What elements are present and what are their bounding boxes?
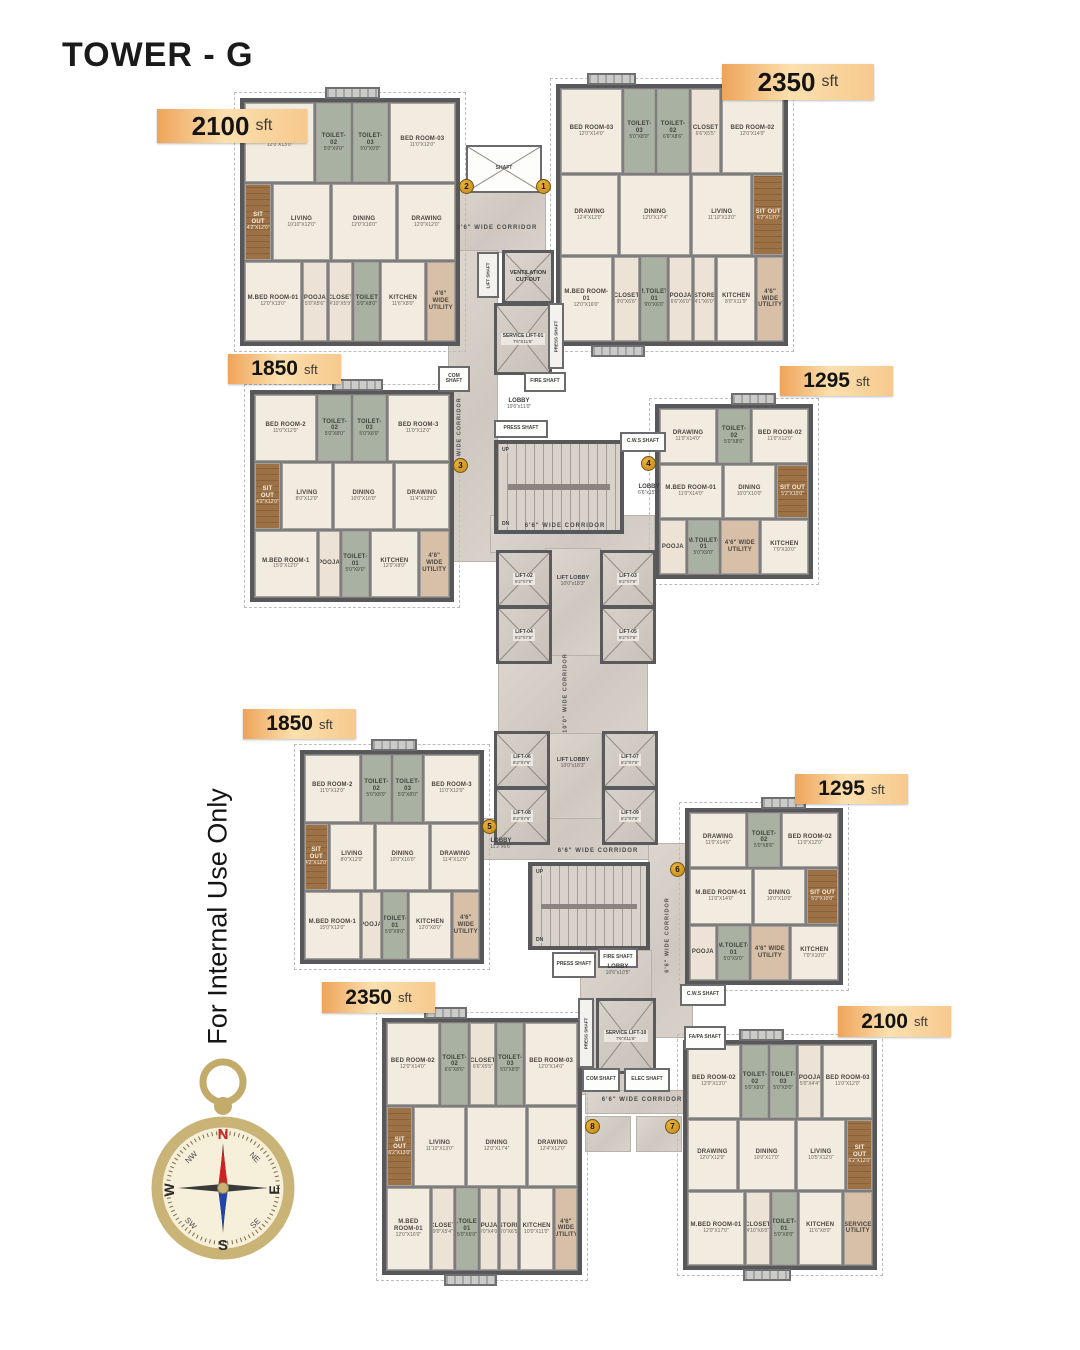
label-service-lift-10: SERVICE LIFT-107'6"X11'6" [604, 1030, 649, 1043]
room-drawing: DRAWING11'0"X14'6" [690, 813, 746, 867]
fa-pa-shaft: FA/PA SHAFT [684, 1026, 726, 1050]
label-lift-06: LIFT-068'2"X7'6" [511, 754, 533, 767]
unit-row: BED ROOM-211'0"X12'0"TOILET-025'0"X8'0"T… [304, 754, 480, 823]
unit-plan-unit-1295-low-right: DRAWING11'0"X14'6"TOILET-025'0"X8'6"BED … [685, 808, 843, 985]
compass-south-label: S [218, 1237, 228, 1254]
stair-landing [508, 484, 611, 490]
compass-icon: N S W E NW NE SW SE [148, 1038, 298, 1276]
room-closet: CLOSET4'10"X6'0" [746, 1192, 770, 1265]
area-badge-2100-7: 2100sft [838, 1006, 951, 1037]
lift-03: LIFT-038'2"X7'6" [600, 550, 656, 608]
room-dims: 11'0"X12'0" [767, 437, 792, 443]
room-dims: 12'0"X13'0" [267, 143, 292, 149]
room-label: M.TOILET-01 [641, 289, 667, 303]
room-kitchen: KITCHEN11'6"X8'0" [381, 262, 424, 341]
unit-plan-unit-2100-bottom-right: BED ROOM-0212'0"X13'0"TOILET-025'0"X9'0"… [683, 1040, 877, 1270]
room-dims: 5'0"X9'0" [324, 147, 344, 153]
unit-number-4: 4 [641, 456, 656, 471]
room-label: SIT OUT [389, 1137, 410, 1151]
area-value: 2100 [861, 1010, 908, 1034]
room-living: LIVING11'10"X13'0" [692, 175, 751, 255]
room-label: TOILET-02 [364, 779, 389, 793]
unit-row: M.BED ROOM-0112'0"X17'0"CLOSET4'10"X6'0"… [687, 1191, 873, 1266]
room-toilet-02: TOILET-025'0"X8'6" [748, 813, 780, 867]
room-m-bed-room-01: M.BED ROOM-0112'0"X13'0" [245, 262, 301, 341]
corridor-label-vertical: 6'6" WIDE CORRIDOR [660, 865, 676, 1005]
lift-lobby-label: LIFT LOBBY10'0"x18'3" [548, 568, 598, 594]
room-dining: DINING10'0"X16'0" [334, 463, 393, 528]
room-drawing: DRAWING12'0"X12'0" [398, 184, 455, 259]
room-closet: CLOSET6'6"X5'5" [470, 1023, 495, 1105]
room-dims: 5'0"X8'0" [359, 432, 379, 438]
room-kitchen: KITCHEN11'6"X8'0" [799, 1192, 842, 1265]
label-c-w-s-shaft: C.W.S SHAFT [687, 992, 719, 998]
room-dims: 8'0"X12'0" [296, 497, 319, 503]
area-value: 1850 [251, 357, 298, 381]
room-bed-room-02: BED ROOM-0212'0"X14'0" [387, 1023, 439, 1105]
compass-east-label: E [266, 1185, 282, 1194]
room-sit-out: SIT OUT4'2"X12'0" [245, 184, 271, 259]
room-label: 4'6" WIDE UTILITY [429, 291, 453, 312]
room-bed-room-02: BED ROOM-0212'0"X13'0" [688, 1045, 740, 1118]
room-dims: 5'2"X10'0" [781, 492, 804, 498]
watermark-text: For Internal Use Only [203, 777, 234, 1057]
label-shaft: SHAFT [496, 166, 513, 172]
lobby-dims: 11'2"x6'6" [490, 844, 512, 850]
room-label: TOILET-01 [772, 1219, 796, 1233]
room-kitchen: KITCHEN12'0"X8'0" [371, 531, 417, 597]
compass-west-label: W [161, 1183, 177, 1197]
label-lift-03: LIFT-038'2"X7'6" [617, 573, 639, 586]
unit-plan-unit-1850-mid-left: BED ROOM-211'0"X12'0"TOILET-025'0"X8'0"T… [250, 390, 454, 602]
corridor-label: 8'6" WIDE CORRIDOR [450, 222, 544, 234]
balcony-tab [739, 1029, 784, 1041]
unit-number-6: 6 [670, 862, 685, 877]
room-dims: 10'0"X17'0" [754, 1156, 779, 1162]
lift-lobby-dims: 10'0"x18'3" [561, 581, 586, 587]
area-unit: sft [821, 73, 838, 91]
room-living: LIVING8'0"X12'0" [330, 824, 375, 890]
balcony-tab [444, 1274, 498, 1286]
room-label: POOJA [692, 949, 714, 956]
label-lift-09: LIFT-098'2"X7'6" [619, 810, 641, 823]
unit-row: POOJAM.TOILET-015'0"X9'0"4'6" WIDE UTILI… [659, 519, 809, 575]
floor-plan-canvas: TOWER - G For Internal Use Only N S W E … [0, 0, 1080, 1350]
unit-row: SIT OUT6'2"X13'0"LIVING11'10"X13'0"DININ… [386, 1106, 578, 1186]
area-unit: sft [319, 717, 333, 732]
room-toilet-03: TOILET-035'0"X8'0" [393, 755, 422, 822]
unit-row: M.BED ROOM-115'0"X12'0"POOJATOILET-015'0… [254, 530, 450, 598]
room-sit-out: SIT OUT4'2"X12'0" [255, 463, 280, 528]
room-dims: 11'4"X12'0" [442, 858, 467, 864]
room-drawing: DRAWING11'0"X14'0" [660, 409, 716, 463]
label-c-w-s-shaft: C.W.S SHAFT [627, 439, 659, 445]
room-toilet-02: TOILET-026'6"X8'6" [441, 1023, 469, 1105]
room-dims: 12'0"X16'0" [396, 1233, 421, 1239]
com-shaft: COM SHAFT [438, 366, 470, 392]
room-pooja: POOJA5'0"X5'6" [303, 262, 327, 341]
room-dining: DINING12'0"X17'4" [620, 175, 690, 255]
room-dining: DINING10'0"X10'0" [724, 465, 775, 519]
room-dims: 8'0"X12'0" [340, 858, 363, 864]
room-m-bed-room-01: M.BED ROOM-0112'0"X17'0" [688, 1192, 744, 1265]
press-shaft: PRESS SHAFT [578, 998, 594, 1068]
room-dims: 12'0"X12'0" [414, 223, 439, 229]
room-service-utility: SERVICE UTILITY [844, 1192, 872, 1265]
unit-row: M.BED ROOM-0112'0"X16'0"CLOSET9'0"X5'4"M… [386, 1187, 578, 1271]
room-dims: 5'0"X8'0" [357, 302, 377, 308]
area-value: 2350 [345, 986, 392, 1010]
room-dims: 9'0"X6'0" [644, 303, 664, 309]
room-dims: 5'0"X9'0" [385, 930, 405, 936]
label-lift-05: LIFT-058'2"X7'6" [617, 629, 639, 642]
room-bed-room-3: BED ROOM-311'0"X12'0" [388, 395, 449, 461]
room-bed-room-3: BED ROOM-311'0"X12'0" [424, 755, 479, 822]
room-dims: 6'6"X5'5" [473, 1065, 493, 1071]
room-dims: 10'10"X12'0" [287, 223, 315, 229]
unit-row: SIT OUT4'2"X12'0"LIVING10'10"X12'0"DININ… [244, 183, 456, 260]
lobby-dims: 10'6"x10'5" [606, 970, 631, 976]
room-label: POOJA [662, 544, 684, 551]
room-toilet-02: TOILET-025'0"X8'0" [318, 395, 351, 461]
room-label: SIT OUT [247, 212, 269, 226]
unit-number-5: 5 [482, 819, 497, 834]
room-living: LIVING10'5"X12'0" [797, 1120, 846, 1190]
room-label: TOILET-02 [750, 831, 778, 845]
room-dims: 11'4"X12'0" [410, 497, 435, 503]
room-dims: 12'0"X14'0" [740, 132, 765, 138]
room-label: TOILET-03 [498, 1055, 522, 1069]
room-toilet-03: TOILET-035'0"X8'0" [497, 1023, 523, 1105]
room-4-6-wide-utility: 4'6" WIDE UTILITY [420, 531, 449, 597]
room-closet: CLOSET9'0"X6'6" [614, 257, 640, 341]
lift-04: LIFT-048'2"X7'6" [496, 606, 552, 664]
stairs-up-label: UP [502, 447, 509, 453]
room-dims: 6'2"X12'0" [848, 1159, 871, 1165]
room-dims: 5'0"X8'0" [629, 135, 649, 141]
label-press-shaft: PRESS SHAFT [556, 962, 591, 968]
room-dims: 4'2"X12'0" [247, 226, 270, 232]
corridor-label-text: 6'6" WIDE CORRIDOR [665, 897, 671, 972]
room-toilet-03: TOILET-035'0"X8'0" [624, 89, 655, 173]
area-value: 1295 [803, 369, 850, 393]
room-dims: 10'0"X16'0" [390, 858, 415, 864]
room-dims: 11'10"X13'0" [708, 216, 736, 222]
room-label: TOILET-03 [771, 1072, 795, 1086]
room-dims: 12'4"X12'0" [577, 216, 602, 222]
unit-row: BED ROOM-211'0"X12'0"TOILET-025'0"X8'0"T… [254, 394, 450, 462]
room-dims: 5'0"X8'0" [500, 1068, 520, 1074]
lift-shaft: LIFT SHAFT [477, 252, 499, 298]
room-dims: 4'1"X6'0" [695, 300, 715, 306]
unit-row: M.BED ROOM-0112'0"X16'0"CLOSET9'0"X6'6"M… [560, 256, 784, 342]
room-dims: 6'6"X8'6" [663, 135, 683, 141]
lift-09: LIFT-098'2"X7'6" [602, 787, 658, 845]
room-label: 4'6" WIDE UTILITY [758, 289, 782, 310]
room-dining: DINING12'0"X16'0" [332, 184, 397, 259]
room-dims: 12'0"X13'0" [260, 302, 285, 308]
room-dims: 12'0"X13'0" [701, 1082, 726, 1088]
lobby-area: LOBBY10'6"x10'5" [588, 958, 648, 982]
room-closet: CLOSET4'10"X5'9" [329, 262, 353, 341]
room-dims: 10'5"X12'0" [808, 1156, 833, 1162]
room-dims: 5'2"X10'0" [811, 897, 834, 903]
room-dims: 15'0"X12'0" [273, 564, 298, 570]
label-service-lift-01: SERVICE LIFT-017'6"X11'6" [501, 333, 546, 346]
area-badge-1850-2: 1850sft [228, 354, 341, 384]
room-dims: 5'0"X9'0" [693, 551, 713, 557]
room-dims: 11'10"X13'0" [426, 1147, 454, 1153]
area-value: 1850 [266, 712, 313, 736]
unit-row: DRAWING12'0"X12'0"DINING10'0"X17'0"LIVIN… [687, 1119, 873, 1191]
unit-number-3: 3 [453, 458, 468, 473]
room-label: SERVICE UTILITY [844, 1222, 872, 1236]
room-toilet-02: TOILET-026'6"X8'6" [657, 89, 690, 173]
area-value: 2350 [758, 67, 816, 98]
balcony-tab [743, 1269, 791, 1281]
room-store: STORE6'0"X6'5" [500, 1188, 518, 1270]
room-dims: 11'6"X8'0" [392, 302, 414, 308]
room-store: STORE4'1"X6'0" [694, 257, 715, 341]
label-elec-shaft: ELEC SHAFT [631, 1077, 662, 1083]
area-unit: sft [914, 1014, 928, 1029]
room-dims: 6'6"X8'6" [445, 1068, 465, 1074]
unit-row: SIT OUT4'2"X12'0"LIVING8'0"X12'0"DINING1… [304, 823, 480, 891]
room-dining: DINING10'0"X16'0" [376, 824, 429, 890]
room-dims: 12'0"X17'4" [484, 1147, 509, 1153]
room-dims: 11'0"X12'0" [835, 1082, 860, 1088]
corridor-label: 6'6" WIDE CORRIDOR [500, 520, 630, 532]
area-badge-2350-1: 2350sft [722, 64, 874, 100]
room-dims: 5'0"X9'0" [723, 957, 743, 963]
room-drawing: DRAWING11'4"X12'0" [395, 463, 449, 528]
room-toilet-01: TOILET-015'0"X8'0" [772, 1192, 797, 1265]
area-badge-1295-3: 1295sft [780, 366, 893, 396]
unit-row: BED ROOM-0212'0"X14'0"TOILET-026'6"X8'6"… [386, 1022, 578, 1106]
area-badge-2100-0: 2100sft [157, 109, 307, 143]
room-toilet-02: TOILET-025'0"X9'0" [316, 103, 351, 182]
unit-row: DRAWING12'4"X12'0"DINING12'0"X17'4"LIVIN… [560, 174, 784, 256]
room-kitchen: KITCHEN7'0"X10'0" [761, 520, 808, 574]
stair-landing [541, 904, 637, 910]
room-label: TOILET-02 [318, 133, 349, 147]
lobby-dims: 6'6"x15'9" [638, 490, 660, 496]
room-m-bed-room-01: M.BED ROOM-0112'0"X16'0" [387, 1188, 430, 1270]
room-label: 4'6" WIDE UTILITY [723, 540, 756, 554]
room-kitchen: KITCHEN7'0"X10'0" [791, 926, 838, 980]
room-living: LIVING10'10"X12'0" [273, 184, 330, 259]
room-label: 4'6" WIDE UTILITY [454, 915, 478, 936]
lobby-dims: 10'6"x11'0" [507, 404, 531, 410]
unit-number-7: 7 [665, 1119, 680, 1134]
room-label: TOILET-02 [743, 1072, 767, 1086]
room-drawing: DRAWING12'4"X12'0" [561, 175, 618, 255]
room-toilet-01: TOILET-015'0"X9'0" [342, 531, 370, 597]
area-unit: sft [871, 782, 885, 797]
room-dining: DINING12'0"X17'4" [467, 1107, 526, 1185]
room-4-6-wide-utility: 4'6" WIDE UTILITY [453, 892, 479, 959]
unit-plan-unit-2350-bottom-left: BED ROOM-0212'0"X14'0"TOILET-026'6"X8'6"… [382, 1018, 582, 1275]
room-dims: 12'0"X8'0" [419, 926, 442, 932]
room-bed-room-03: BED ROOM-0311'0"X12'0" [823, 1045, 872, 1118]
room-dims: 10'0"X11'0" [524, 1230, 549, 1236]
room-label: M.TOILET-01 [718, 943, 749, 957]
room-label: TOILET-02 [659, 121, 688, 135]
room-dims: 10'0"X16'0" [351, 497, 376, 503]
room-dims: 10'0"X10'0" [767, 897, 792, 903]
room-label: M.BED ROOM-01 [389, 1219, 428, 1233]
room-pooja: POOJA6'6"X6'0" [669, 257, 692, 341]
balcony-tab [325, 87, 380, 99]
unit-row: M.BED ROOM-0111'0"X14'0"DINING10'0"X10'0… [689, 868, 839, 924]
room-4-6-wide-utility: 4'6" WIDE UTILITY [751, 926, 788, 980]
label-press-shaft: PRESS SHAFT [554, 320, 559, 352]
unit-row: M.BED ROOM-0112'0"X13'0"POOJA5'0"X5'6"CL… [244, 261, 456, 342]
area-unit: sft [856, 374, 870, 389]
room-label: TOILET-01 [383, 916, 407, 930]
room-puja: PUJA4'0"X4'0" [480, 1188, 498, 1270]
label-lift-shaft: LIFT SHAFT [486, 262, 491, 288]
press-shaft: PRESS SHAFT [494, 420, 548, 438]
label-fire-shaft: FIRE SHAFT [530, 379, 559, 385]
room-dims: 11'0"X14'0" [675, 437, 700, 443]
room-closet: CLOSET9'0"X5'4" [432, 1188, 454, 1270]
room-dims: 11'0"X14'6" [705, 841, 730, 847]
room-dims: 7'0"X10'0" [803, 954, 826, 960]
unit-number-8: 8 [585, 1119, 600, 1134]
room-dims: 11'0"X14'0" [708, 897, 733, 903]
room-m-bed-room-1: M.BED ROOM-115'0"X12'0" [255, 531, 317, 597]
corridor-label: 6'6" WIDE CORRIDOR [588, 1094, 696, 1106]
balcony-tab [591, 345, 645, 357]
room-dims: 11'0"X12'0" [406, 429, 431, 435]
corridor-label-text: 10'0" WIDE CORRIDOR [563, 653, 569, 732]
room-dims: 11'0"X12'0" [797, 841, 822, 847]
unit-row: DRAWING11'0"X14'6"TOILET-025'0"X8'6"BED … [689, 812, 839, 868]
stairs-up-label: UP [536, 869, 543, 875]
room-label: POOJA [319, 560, 340, 567]
fire-shaft: FIRE SHAFT [524, 372, 566, 392]
room-dims: 5'0"X6'0" [457, 1233, 477, 1239]
area-badge-2350-6: 2350sft [322, 982, 435, 1013]
service-lift-01: SERVICE LIFT-017'6"X11'6" [494, 303, 552, 375]
room-m-toilet-01: M.TOILET-019'0"X6'0" [641, 257, 667, 341]
room-4-6-wide-utility: 4'6" WIDE UTILITY [757, 257, 783, 341]
room-label: TOILET-03 [395, 779, 420, 793]
room-m-bed-room-1: M.BED ROOM-115'0"X12'0" [305, 892, 360, 959]
room-closet: CLOSET6'6"X5'5" [691, 89, 720, 173]
room-label: POOJA [362, 922, 381, 929]
room-dims: 6'2"X13'0" [388, 1151, 411, 1157]
room-dims: 5'0"X5'6" [305, 302, 325, 308]
room-dims: 12'0"X17'0" [703, 1229, 728, 1235]
room-label: TOILET-02 [442, 1055, 466, 1069]
balcony-tab [371, 739, 417, 751]
room-sit-out: SIT OUT5'2"X10'0" [777, 465, 808, 519]
stairs-down-label: DN [536, 937, 543, 943]
room-dims: 4'0"X4'0" [480, 1230, 498, 1236]
room-dims: 5'0"X9'0" [345, 568, 365, 574]
room-bed-room-2: BED ROOM-211'0"X12'0" [255, 395, 316, 461]
room-dims: 10'0"X10'0" [737, 492, 762, 498]
room-toilet-02: TOILET-025'0"X9'0" [742, 1045, 768, 1118]
room-sit-out: SIT OUT4'2"X12'0" [305, 824, 328, 890]
room-dims: 11'0"X12'0" [439, 789, 464, 795]
room-living: LIVING8'0"X12'0" [282, 463, 332, 528]
room-dims: 5'0"X8'0" [325, 432, 345, 438]
lobby-area: LOBBY11'2"x6'6" [472, 832, 530, 856]
unit-plan-unit-2350-top-right: BED ROOM-0312'0"X14'0"TOILET-035'0"X8'0"… [556, 84, 788, 346]
room-dims: 12'0"X14'0" [538, 1065, 563, 1071]
service-lift-10: SERVICE LIFT-107'6"X11'6" [596, 998, 656, 1074]
room-pooja: POOJA5'0"X4'4" [798, 1045, 821, 1118]
room-sit-out: SIT OUT6'2"X13'0" [753, 175, 783, 255]
unit-row: M.BED ROOM-115'0"X12'0"POOJATOILET-015'0… [304, 891, 480, 960]
lift-07: LIFT-078'2"X7'6" [602, 731, 658, 789]
room-bed-room-02: BED ROOM-0212'0"X14'0" [722, 89, 783, 173]
room-toilet-02: TOILET-025'0"X8'0" [362, 755, 391, 822]
room-dims: 9'0"X6'6" [617, 300, 637, 306]
room-dining: DINING10'0"X17'0" [739, 1120, 795, 1190]
room-pooja: POOJA [362, 892, 381, 959]
room-dims: 4'2"X12'0" [305, 861, 328, 867]
room-dims: 15'0"X12'0" [320, 926, 345, 932]
room-4-6-wide-utility: 4'6" WIDE UTILITY [555, 1188, 577, 1270]
room-dims: 4'10"X5'9" [329, 302, 352, 308]
ventilation-cut-out: VENTILATION CUT-OUT [502, 250, 554, 304]
room-label: TOILET-03 [355, 419, 384, 433]
room-bed-room-03: BED ROOM-0312'0"X14'0" [561, 89, 622, 173]
room-toilet-03: TOILET-035'0"X9'0" [770, 1045, 796, 1118]
room-m-bed-room-01: M.BED ROOM-0111'0"X14'0" [690, 869, 752, 923]
room-label: TOILET-02 [320, 419, 349, 433]
room-dims: 11'0"X14'0" [678, 492, 703, 498]
area-unit: sft [255, 117, 272, 135]
balcony-tab [587, 73, 636, 85]
room-label: SIT OUT [307, 847, 326, 861]
label-ventilation-cut-out: VENTILATION CUT-OUT [505, 270, 551, 283]
elec-shaft: ELEC SHAFT [624, 1068, 670, 1092]
room-toilet-01: TOILET-015'0"X9'0" [383, 892, 408, 959]
corridor-label: 6'6" WIDE CORRIDOR [540, 845, 656, 857]
room-bed-room-02: BED ROOM-0211'0"X12'0" [782, 813, 838, 867]
room-drawing: DRAWING12'0"X12'0" [688, 1120, 737, 1190]
label-lift-04: LIFT-048'2"X7'6" [513, 629, 535, 642]
unit-row: M.BED ROOM-0111'0"X14'0"DINING10'0"X10'0… [659, 464, 809, 520]
unit-row: DRAWING11'0"X14'0"TOILET-025'0"X8'6"BED … [659, 408, 809, 464]
room-dims: 5'0"X8'0" [398, 793, 418, 799]
label-lift-08: LIFT-088'2"X7'6" [511, 810, 533, 823]
room-label: M.TOILET-01 [688, 538, 719, 552]
room-label: SIT OUT [849, 1145, 870, 1159]
room-kitchen: KITCHEN8'0"X11'9" [717, 257, 755, 341]
label-lift-02: LIFT-028'2"X7'6" [513, 573, 535, 586]
room-dims: 5'0"X8'6" [754, 844, 774, 850]
room-dims: 6'2"X13'0" [757, 216, 780, 222]
room-dims: 12'0"X8'0" [383, 564, 406, 570]
label-press-shaft: PRESS SHAFT [503, 426, 538, 432]
unit-row: POOJAM.TOILET-015'0"X9'0"4'6" WIDE UTILI… [689, 925, 839, 981]
corridor-slab [448, 183, 546, 253]
room-toilet-02: TOILET-025'0"X8'6" [718, 409, 750, 463]
room-label: TOILET-02 [720, 426, 748, 440]
room-toilet-03: TOILET-035'0"X8'0" [353, 395, 386, 461]
room-dims: 8'0"X11'9" [725, 300, 747, 306]
room-dims: 4'2"X12'0" [256, 500, 279, 506]
room-dims: 12'0"X14'0" [579, 132, 604, 138]
unit-row: SIT OUT4'2"X12'0"LIVING8'0"X12'0"DINING1… [254, 462, 450, 529]
label-com-shaft: COM SHAFT [440, 374, 468, 385]
